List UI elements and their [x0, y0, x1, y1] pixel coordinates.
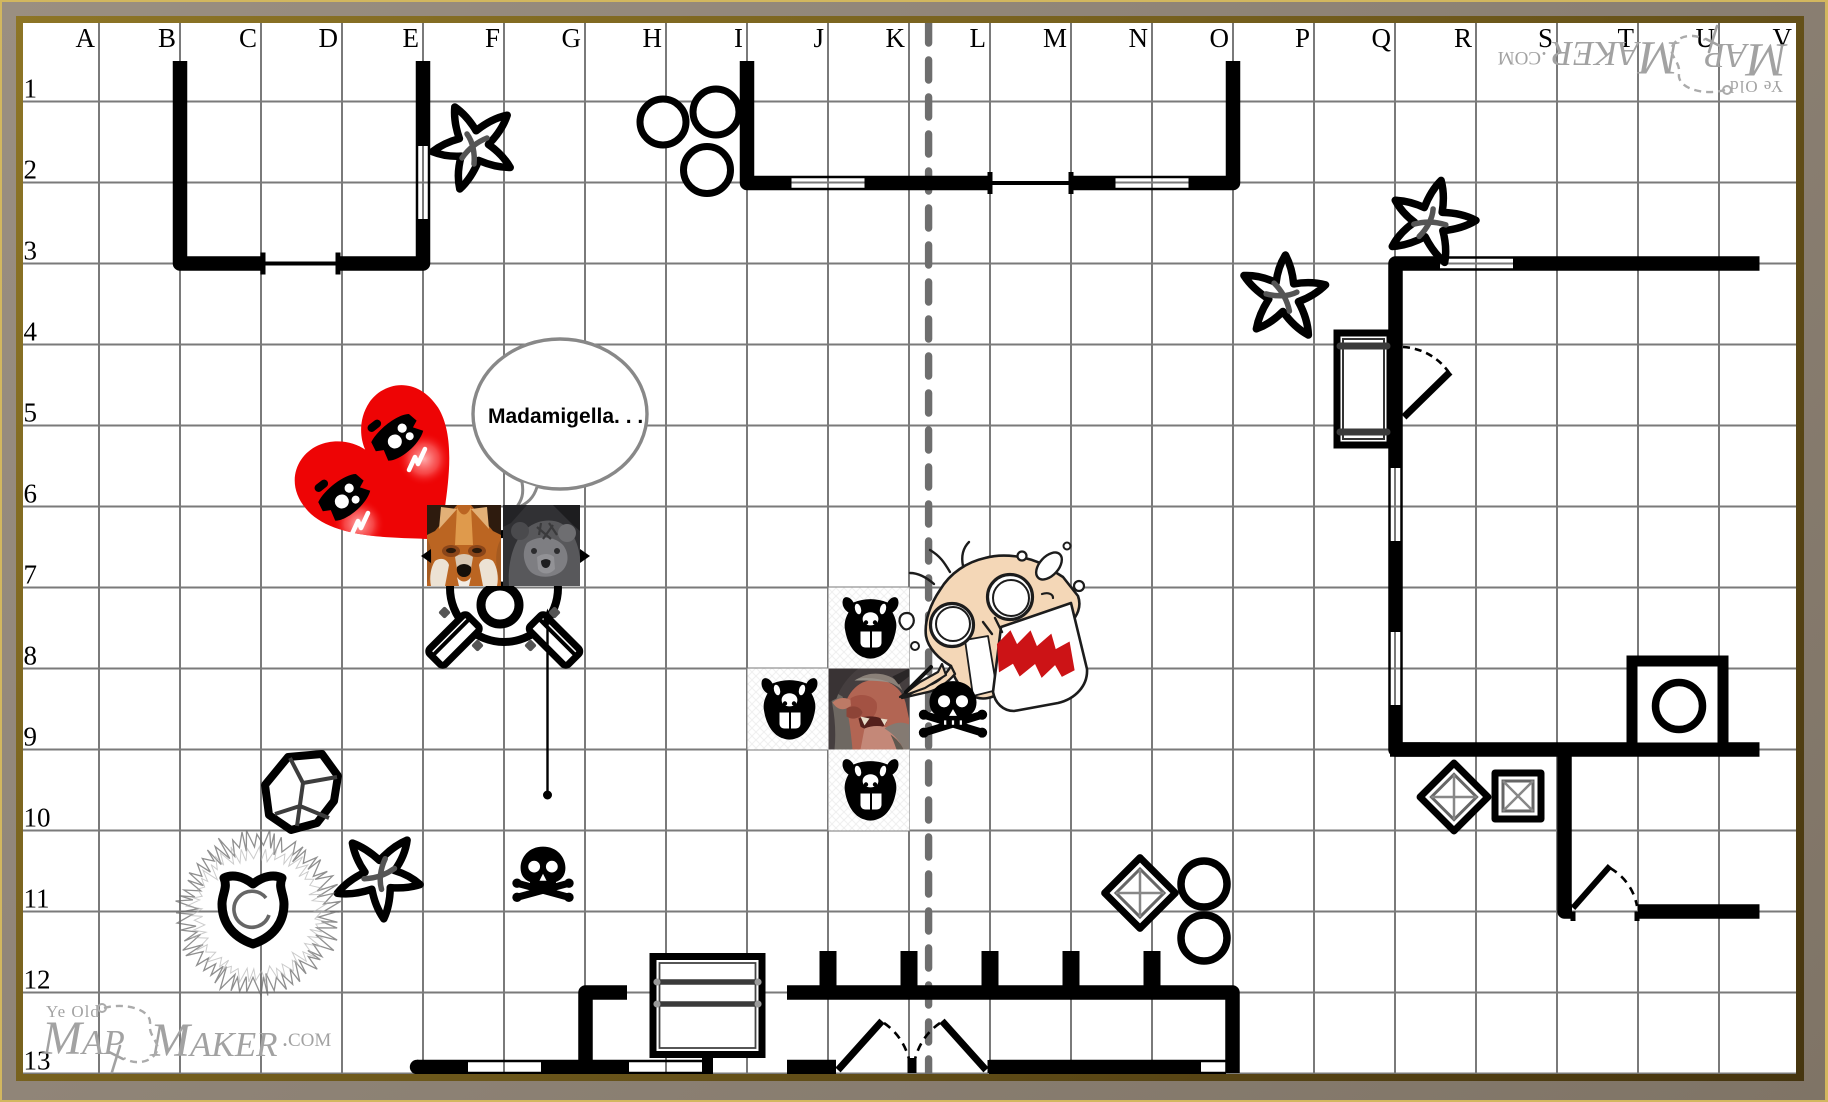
svg-text:D: D: [319, 23, 339, 53]
svg-text:3: 3: [24, 236, 38, 266]
svg-text:J: J: [813, 23, 824, 53]
svg-text:P: P: [1295, 23, 1310, 53]
svg-text:8: 8: [24, 641, 38, 671]
svg-text:Madamigella. . .: Madamigella. . .: [488, 405, 643, 428]
svg-text:11: 11: [24, 884, 50, 914]
svg-text:4: 4: [24, 317, 38, 347]
svg-text:MAKER: MAKER: [149, 1014, 277, 1067]
svg-text:A: A: [76, 23, 96, 53]
svg-text:H: H: [643, 23, 663, 53]
svg-text:F: F: [485, 23, 500, 53]
svg-text:K: K: [886, 23, 906, 53]
svg-text:12: 12: [24, 965, 51, 995]
svg-text:O: O: [1210, 23, 1230, 53]
svg-text:G: G: [562, 23, 582, 53]
svg-text:L: L: [970, 23, 987, 53]
svg-text:.COM: .COM: [282, 1026, 331, 1052]
svg-text:6: 6: [24, 479, 38, 509]
svg-text:10: 10: [24, 803, 51, 833]
svg-text:7: 7: [24, 560, 38, 590]
svg-text:E: E: [403, 23, 420, 53]
svg-text:R: R: [1454, 23, 1472, 53]
svg-text:Q: Q: [1372, 23, 1392, 53]
svg-text:5: 5: [24, 398, 38, 428]
svg-text:M: M: [1043, 23, 1067, 53]
svg-text:9: 9: [24, 722, 38, 752]
svg-text:1: 1: [24, 74, 38, 104]
svg-text:I: I: [734, 23, 743, 53]
svg-text:N: N: [1129, 23, 1149, 53]
svg-text:B: B: [158, 23, 176, 53]
svg-text:2: 2: [24, 155, 38, 185]
svg-text:C: C: [239, 23, 257, 53]
